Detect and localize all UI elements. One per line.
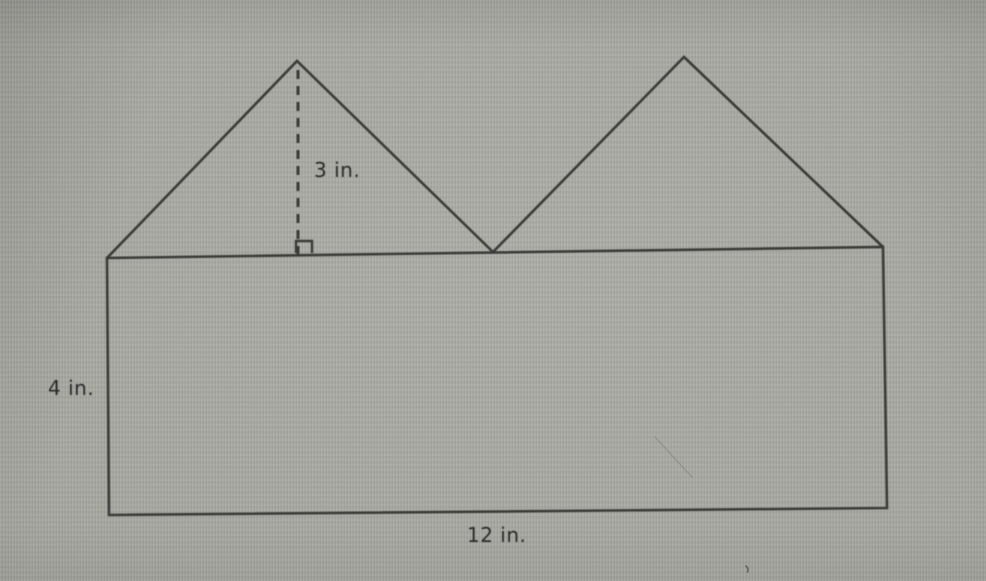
rectangle-outline <box>107 247 887 515</box>
right-triangle-outline <box>493 57 883 252</box>
speck-mark <box>746 566 748 572</box>
figure-lines-group: 3 in. 4 in. 12 in. <box>48 57 887 547</box>
left-triangle-outline <box>107 61 493 258</box>
rectangle-width-label: 12 in. <box>467 523 526 547</box>
triangle-height-label: 3 in. <box>314 158 360 182</box>
rectangle-height-label: 4 in. <box>48 376 94 400</box>
geometry-figure: 3 in. 4 in. 12 in. <box>0 0 986 581</box>
photo-background: 3 in. 4 in. 12 in. <box>0 0 986 581</box>
scratch-mark <box>655 437 692 477</box>
